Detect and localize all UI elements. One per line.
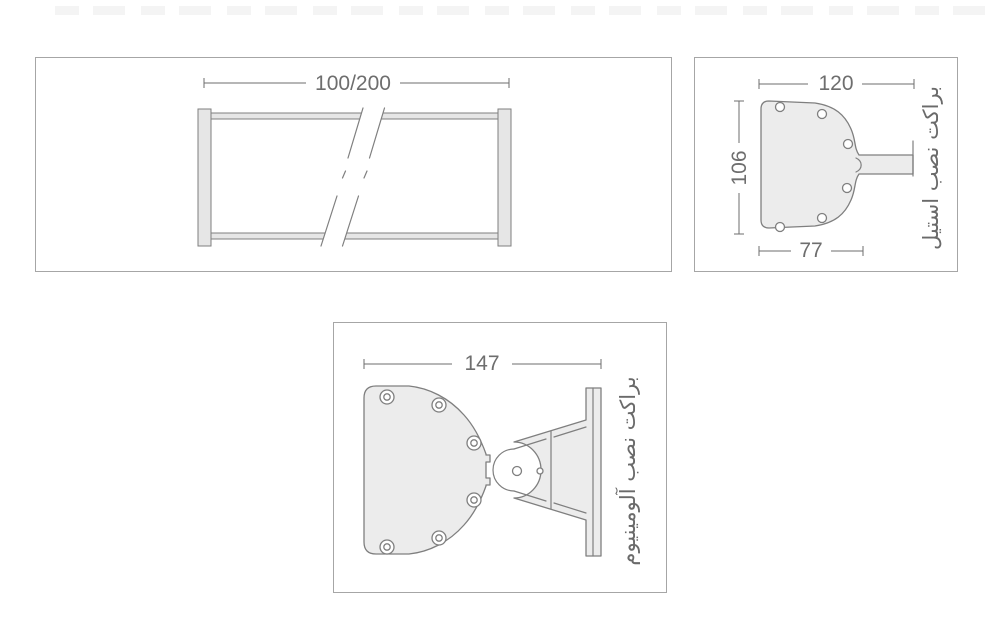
wall-plate-and-gusset (514, 388, 601, 556)
dimension-bottom-value: 77 (799, 239, 822, 262)
top-artifact-strip (55, 6, 985, 15)
dimension-side-106: 106 (728, 101, 751, 234)
aluminum-bracket-plate (364, 386, 490, 554)
technical-drawing-page: 100/200 120 106 77 (0, 0, 1000, 627)
steel-bracket-label: براکت نصب استیل (919, 86, 943, 250)
aluminum-bracket-drawing: 147 براکت نصب آلومینیوم (334, 323, 666, 592)
dimension-length: 100/200 (204, 72, 509, 95)
panel-steel-bracket: 120 106 77 براکت نصب استیل (694, 57, 958, 272)
aluminum-bracket-label: براکت نصب آلومینیوم (615, 376, 640, 565)
dimension-top-147: 147 (364, 352, 601, 375)
gusset-holes (513, 467, 544, 476)
left-end-cap (198, 109, 211, 246)
break-gap (321, 108, 385, 246)
panel-aluminum-bracket: 147 براکت نصب آلومینیوم (333, 322, 667, 593)
dimension-bottom-77: 77 (759, 239, 863, 262)
top-rail (211, 113, 498, 119)
horseshoe-inner-arc (493, 449, 514, 491)
steel-bracket-blade (761, 101, 913, 228)
steel-bracket-drawing: 120 106 77 براکت نصب استیل (695, 58, 957, 271)
panel-pole-frame: 100/200 (35, 57, 672, 272)
dimension-side-value: 106 (728, 150, 751, 185)
dimension-top-value: 147 (464, 352, 499, 375)
dimension-top-value: 120 (818, 72, 853, 95)
pole-frame-drawing: 100/200 (36, 58, 671, 271)
right-end-cap (498, 109, 511, 246)
dimension-top-120: 120 (759, 72, 914, 95)
bottom-rail (211, 233, 498, 239)
dimension-length-value: 100/200 (315, 72, 391, 95)
